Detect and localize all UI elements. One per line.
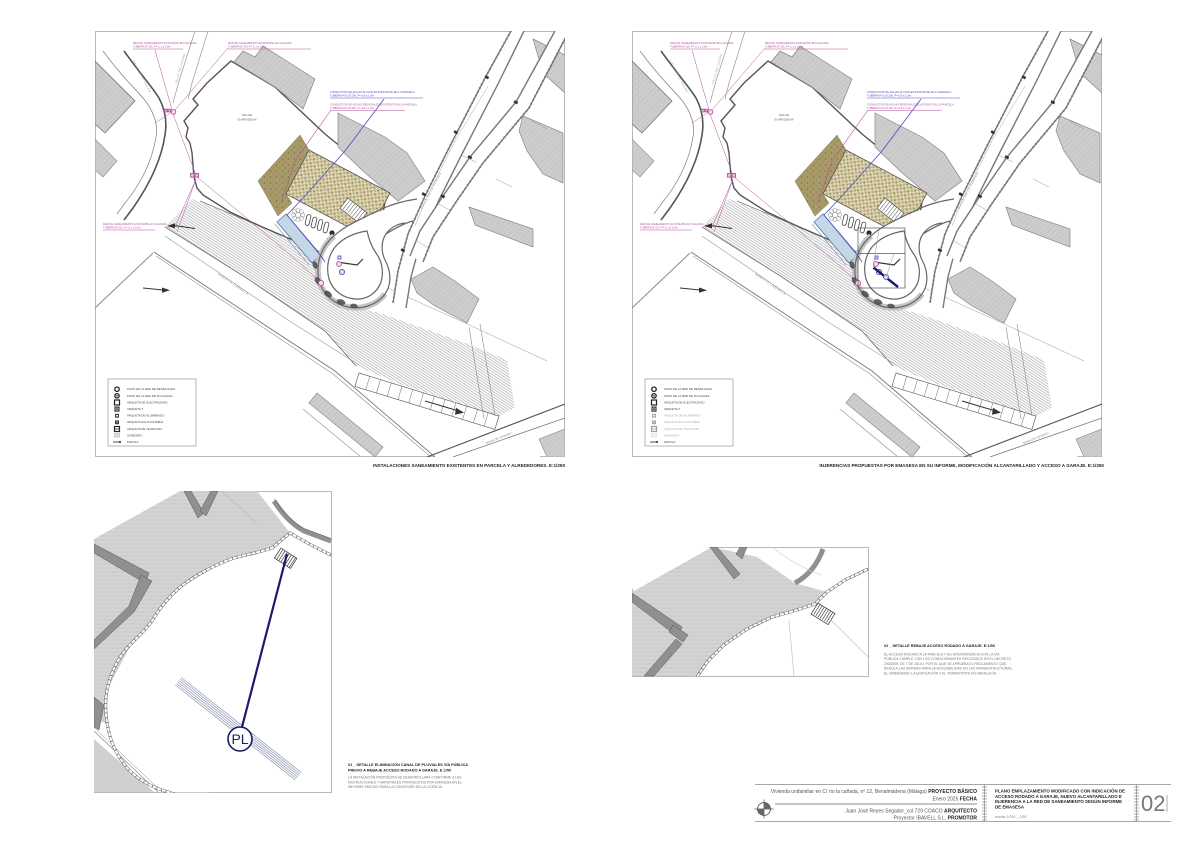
svg-text:02: 02 <box>1141 791 1165 816</box>
svg-text:INFORME EMITIDO PARA LA CONCES: INFORME EMITIDO PARA LA CONCESIÓN DE LA … <box>348 784 443 789</box>
svg-text:293/2009, DE 7 DE JULIO, POR E: 293/2009, DE 7 DE JULIO, POR EL QUE SE A… <box>884 662 1007 666</box>
svg-text:LA INSTALACIÓN PROPUESTA SE DE: LA INSTALACIÓN PROPUESTA SE DESARROLLARÁ… <box>348 775 462 780</box>
svg-text:INJERENCIAS PROPUESTAS POR EMA: INJERENCIAS PROPUESTAS POR EMASESA EN SU… <box>819 461 1104 468</box>
svg-text:Juan José Reyes Segador_col.72: Juan José Reyes Segador_col.729 COACO AR… <box>845 809 977 815</box>
svg-text:DE EMASESA: DE EMASESA <box>995 804 1025 809</box>
svg-text:Vivienda unifamiliar en C/ río: Vivienda unifamiliar en C/ río la cañada… <box>771 788 977 795</box>
svg-text:Enero 2025 FECHA: Enero 2025 FECHA <box>933 797 978 803</box>
svg-text:EL URBANISMO, LA EDIFICACIÓN Y: EL URBANISMO, LA EDIFICACIÓN Y EL TRANSP… <box>884 670 997 675</box>
svg-text:INJERENCIA A LA RED DE SANEAMI: INJERENCIA A LA RED DE SANEAMIENTO SEGÚN… <box>995 799 1122 804</box>
svg-text:PL: PL <box>231 731 248 747</box>
svg-text:ACCESO RODADO A GARAJE, NUEVO: ACCESO RODADO A GARAJE, NUEVO ALCANTARIL… <box>995 794 1122 799</box>
svg-text:Proyector IBAVELL S.L. PROMOT: Proyector IBAVELL S.L. PROMOTOR <box>893 816 977 822</box>
svg-text:EL ACCESO RODADO A LA PARCELA: EL ACCESO RODADO A LA PARCELA Y SU INTER… <box>884 653 1000 657</box>
svg-text:PREVIO A REBAJE ACCESO RODADO: PREVIO A REBAJE ACCESO RODADO A GARAJE. … <box>348 769 451 773</box>
svg-text:PLANO EMPLAZAMIENTO MODIFICADO: PLANO EMPLAZAMIENTO MODIFICADO CON INDIC… <box>995 789 1125 794</box>
svg-text:REGULA LAS NORMAS PARA LA ACCE: REGULA LAS NORMAS PARA LA ACCESIBILIDAD … <box>884 667 1013 671</box>
svg-text:INSTALACIONES SANEAMIENTO EXIS: INSTALACIONES SANEAMIENTO EXISTENTES EN … <box>373 463 565 468</box>
svg-text:01 _ DETALLE ELIMINACIÓN CANAL: 01 _ DETALLE ELIMINACIÓN CANAL DE PLUVIA… <box>348 762 468 767</box>
svg-text:INSTRUCCIONES Y MATERIALES PRO: INSTRUCCIONES Y MATERIALES PROPUESTOS PO… <box>348 780 462 784</box>
svg-text:PÚBLICA CUMPLE CON LOS CONDICI: PÚBLICA CUMPLE CON LOS CONDICIONANTES RE… <box>884 656 1011 661</box>
svg-text:escala 1/250 _ 1/50: escala 1/250 _ 1/50 <box>995 815 1026 819</box>
svg-text:02 _ DETALLE REBAJE ACCESO ROD: 02 _ DETALLE REBAJE ACCESO RODADO A GARA… <box>884 644 995 648</box>
